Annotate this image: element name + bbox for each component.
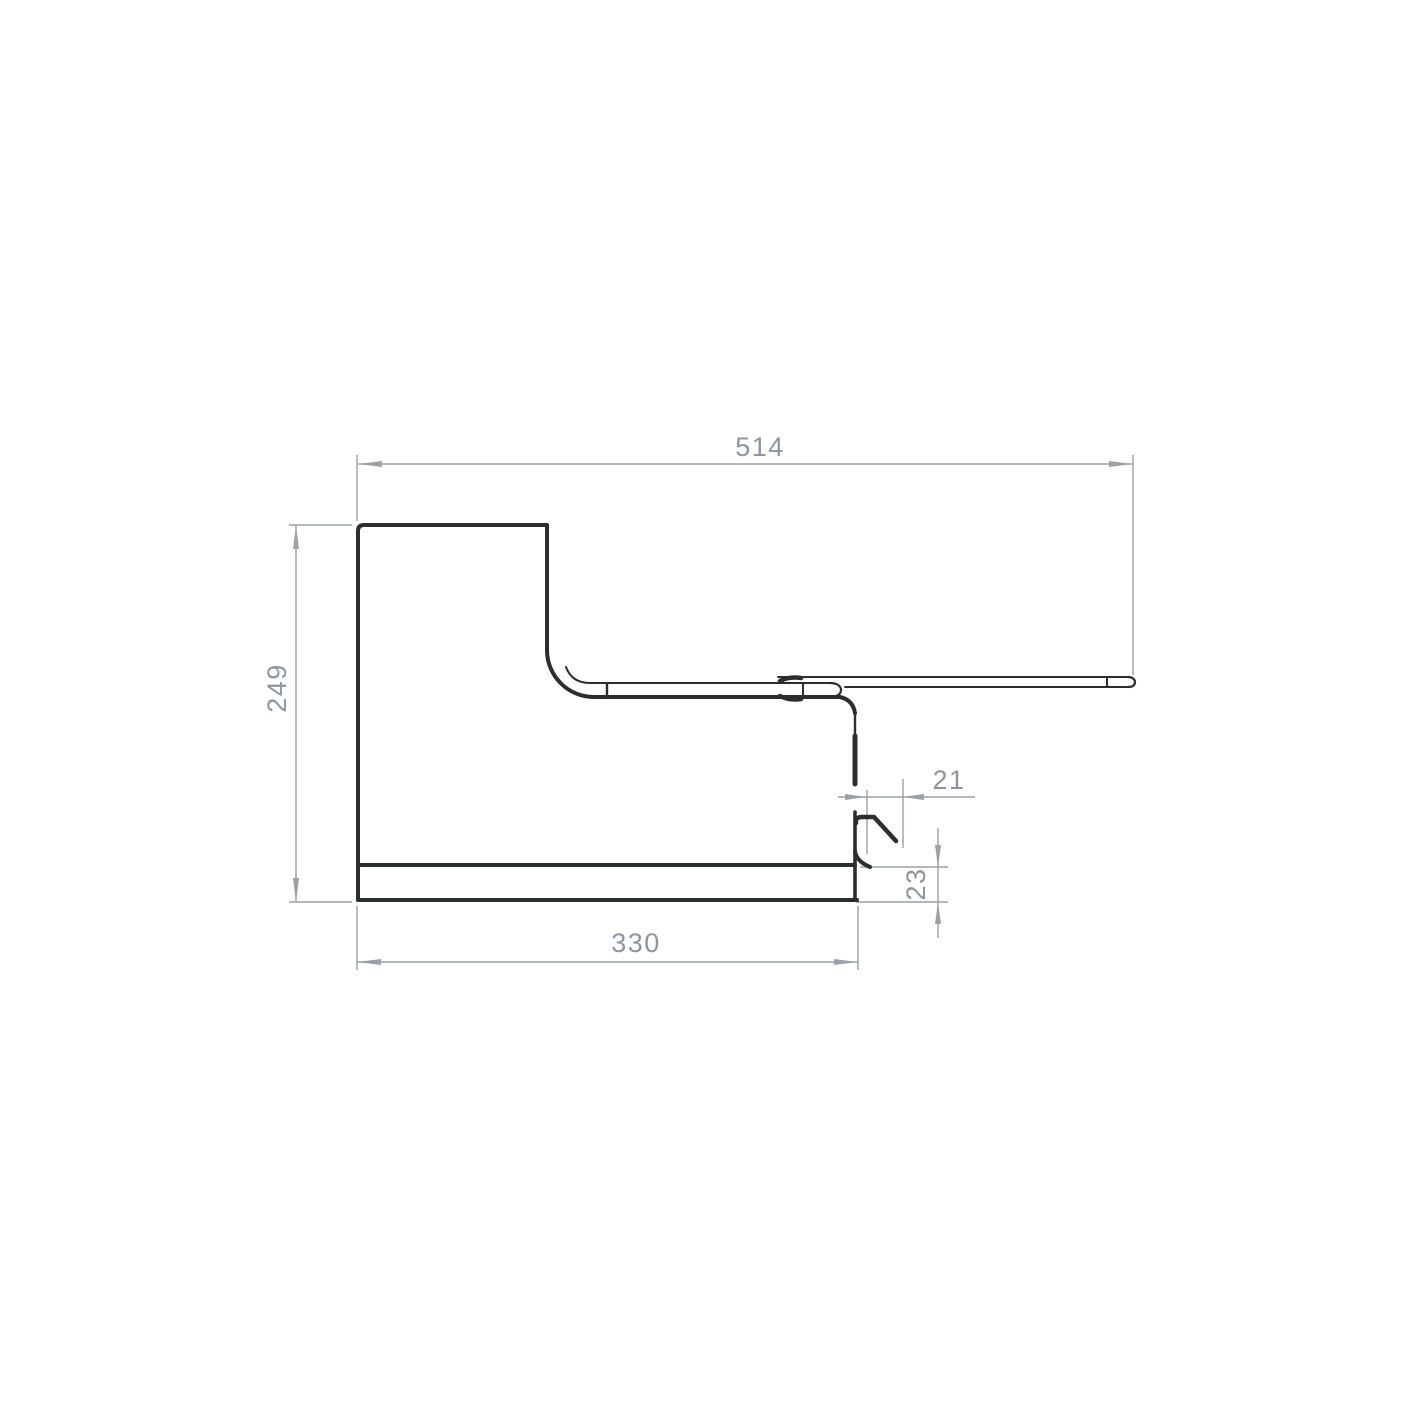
arrowhead xyxy=(1109,461,1133,467)
part-outline-layer xyxy=(358,525,1135,900)
arrowhead xyxy=(357,959,381,965)
arrowheads-layer xyxy=(293,461,1133,965)
shelf-plate-end-cap xyxy=(830,683,841,697)
hinge-knuckle-top xyxy=(780,678,801,681)
technical-drawing-svg: 514 249 330 21 23 xyxy=(0,0,1422,1422)
arrowhead xyxy=(293,525,299,549)
arrowhead xyxy=(935,902,941,924)
dim-top-width xyxy=(357,455,1133,675)
dim-label-top-width: 514 xyxy=(735,432,785,462)
dim-left-height xyxy=(289,525,352,902)
arrowhead xyxy=(845,794,867,800)
dimension-lines-layer xyxy=(289,455,1133,970)
dim-label-base-height: 23 xyxy=(901,867,931,900)
dim-label-left-height: 249 xyxy=(262,663,292,713)
drawing-canvas: 514 249 330 21 23 xyxy=(0,0,1422,1422)
table-leaf-end-cap xyxy=(1128,677,1135,687)
dim-label-hook-offset: 21 xyxy=(932,765,965,795)
latch-hook xyxy=(856,817,896,841)
dim-label-bottom-width: 330 xyxy=(611,928,661,958)
arrowhead xyxy=(358,461,382,467)
bottom-right-curl xyxy=(855,851,870,867)
arrowhead xyxy=(293,878,299,902)
arrowhead xyxy=(902,794,924,800)
arrowhead xyxy=(935,845,941,867)
dim-bottom-width xyxy=(357,906,858,970)
shelf-plate-top-line xyxy=(566,667,830,683)
main-body-outline xyxy=(358,525,855,900)
arrowhead xyxy=(834,959,858,965)
